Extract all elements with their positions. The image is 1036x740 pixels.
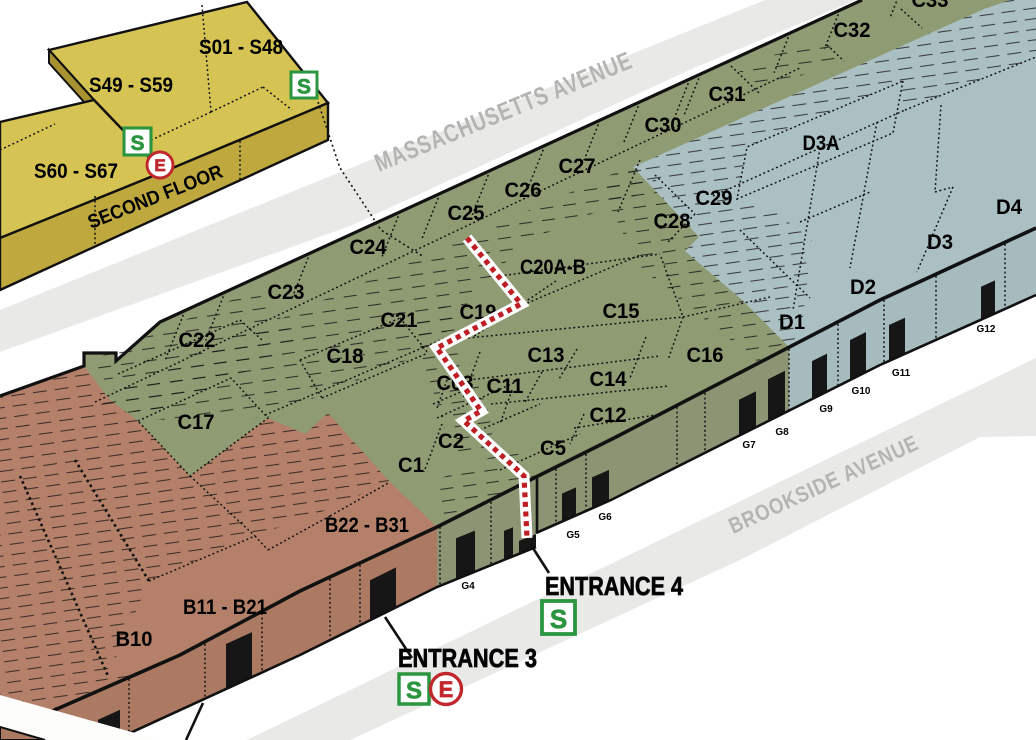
svg-text:B10: B10 <box>116 627 153 651</box>
svg-text:G10: G10 <box>852 386 871 397</box>
svg-text:C15: C15 <box>603 299 640 323</box>
svg-text:C11: C11 <box>487 374 524 398</box>
svg-text:C18: C18 <box>327 344 364 368</box>
svg-text:G5: G5 <box>566 530 580 541</box>
svg-text:D3: D3 <box>927 230 953 254</box>
svg-text:C30: C30 <box>645 113 682 137</box>
svg-text:C29: C29 <box>696 186 733 210</box>
svg-text:S01 - S48: S01 - S48 <box>199 35 283 59</box>
svg-text:C13: C13 <box>528 343 565 367</box>
svg-text:C2: C2 <box>438 429 464 453</box>
svg-text:G4: G4 <box>461 581 475 592</box>
svg-text:D3A: D3A <box>803 131 840 155</box>
svg-text:S: S <box>297 75 311 98</box>
svg-text:C33: C33 <box>912 0 949 12</box>
svg-text:G11: G11 <box>892 368 911 379</box>
svg-text:C23: C23 <box>268 280 305 304</box>
svg-text:C16: C16 <box>687 343 724 367</box>
svg-text:G6: G6 <box>598 512 612 523</box>
svg-text:C28: C28 <box>654 209 691 233</box>
svg-text:S: S <box>406 678 422 705</box>
svg-text:C1: C1 <box>398 453 424 477</box>
svg-text:ENTRANCE 4: ENTRANCE 4 <box>545 571 683 601</box>
svg-text:C26: C26 <box>505 178 542 202</box>
svg-text:C32: C32 <box>834 18 871 42</box>
svg-text:C20A-B: C20A-B <box>520 255 586 279</box>
svg-text:E: E <box>439 677 454 702</box>
svg-text:D1: D1 <box>779 310 805 334</box>
svg-text:C14: C14 <box>590 367 627 391</box>
svg-text:C5: C5 <box>540 436 566 460</box>
svg-text:C31: C31 <box>709 82 746 106</box>
svg-text:C22: C22 <box>179 328 216 352</box>
svg-text:C12: C12 <box>590 403 627 427</box>
svg-text:C25: C25 <box>448 201 485 225</box>
svg-text:B22 - B31: B22 - B31 <box>325 513 409 537</box>
svg-text:S: S <box>130 132 144 155</box>
svg-text:G7: G7 <box>742 440 756 451</box>
svg-text:C17: C17 <box>178 410 215 434</box>
svg-text:E: E <box>154 156 165 175</box>
svg-text:ENTRANCE 3: ENTRANCE 3 <box>398 643 537 673</box>
svg-text:G9: G9 <box>819 404 833 415</box>
svg-text:S49 - S59: S49 - S59 <box>89 73 173 97</box>
svg-text:G8: G8 <box>775 427 789 438</box>
svg-text:C21: C21 <box>381 308 418 332</box>
svg-text:C27: C27 <box>559 154 596 178</box>
svg-text:C24: C24 <box>350 235 387 259</box>
svg-text:B11 - B21: B11 - B21 <box>183 595 267 619</box>
svg-text:S60 - S67: S60 - S67 <box>34 159 118 183</box>
svg-text:G12: G12 <box>977 324 996 335</box>
svg-text:D2: D2 <box>850 275 876 299</box>
svg-text:D4: D4 <box>996 195 1022 219</box>
svg-text:S: S <box>550 604 567 634</box>
